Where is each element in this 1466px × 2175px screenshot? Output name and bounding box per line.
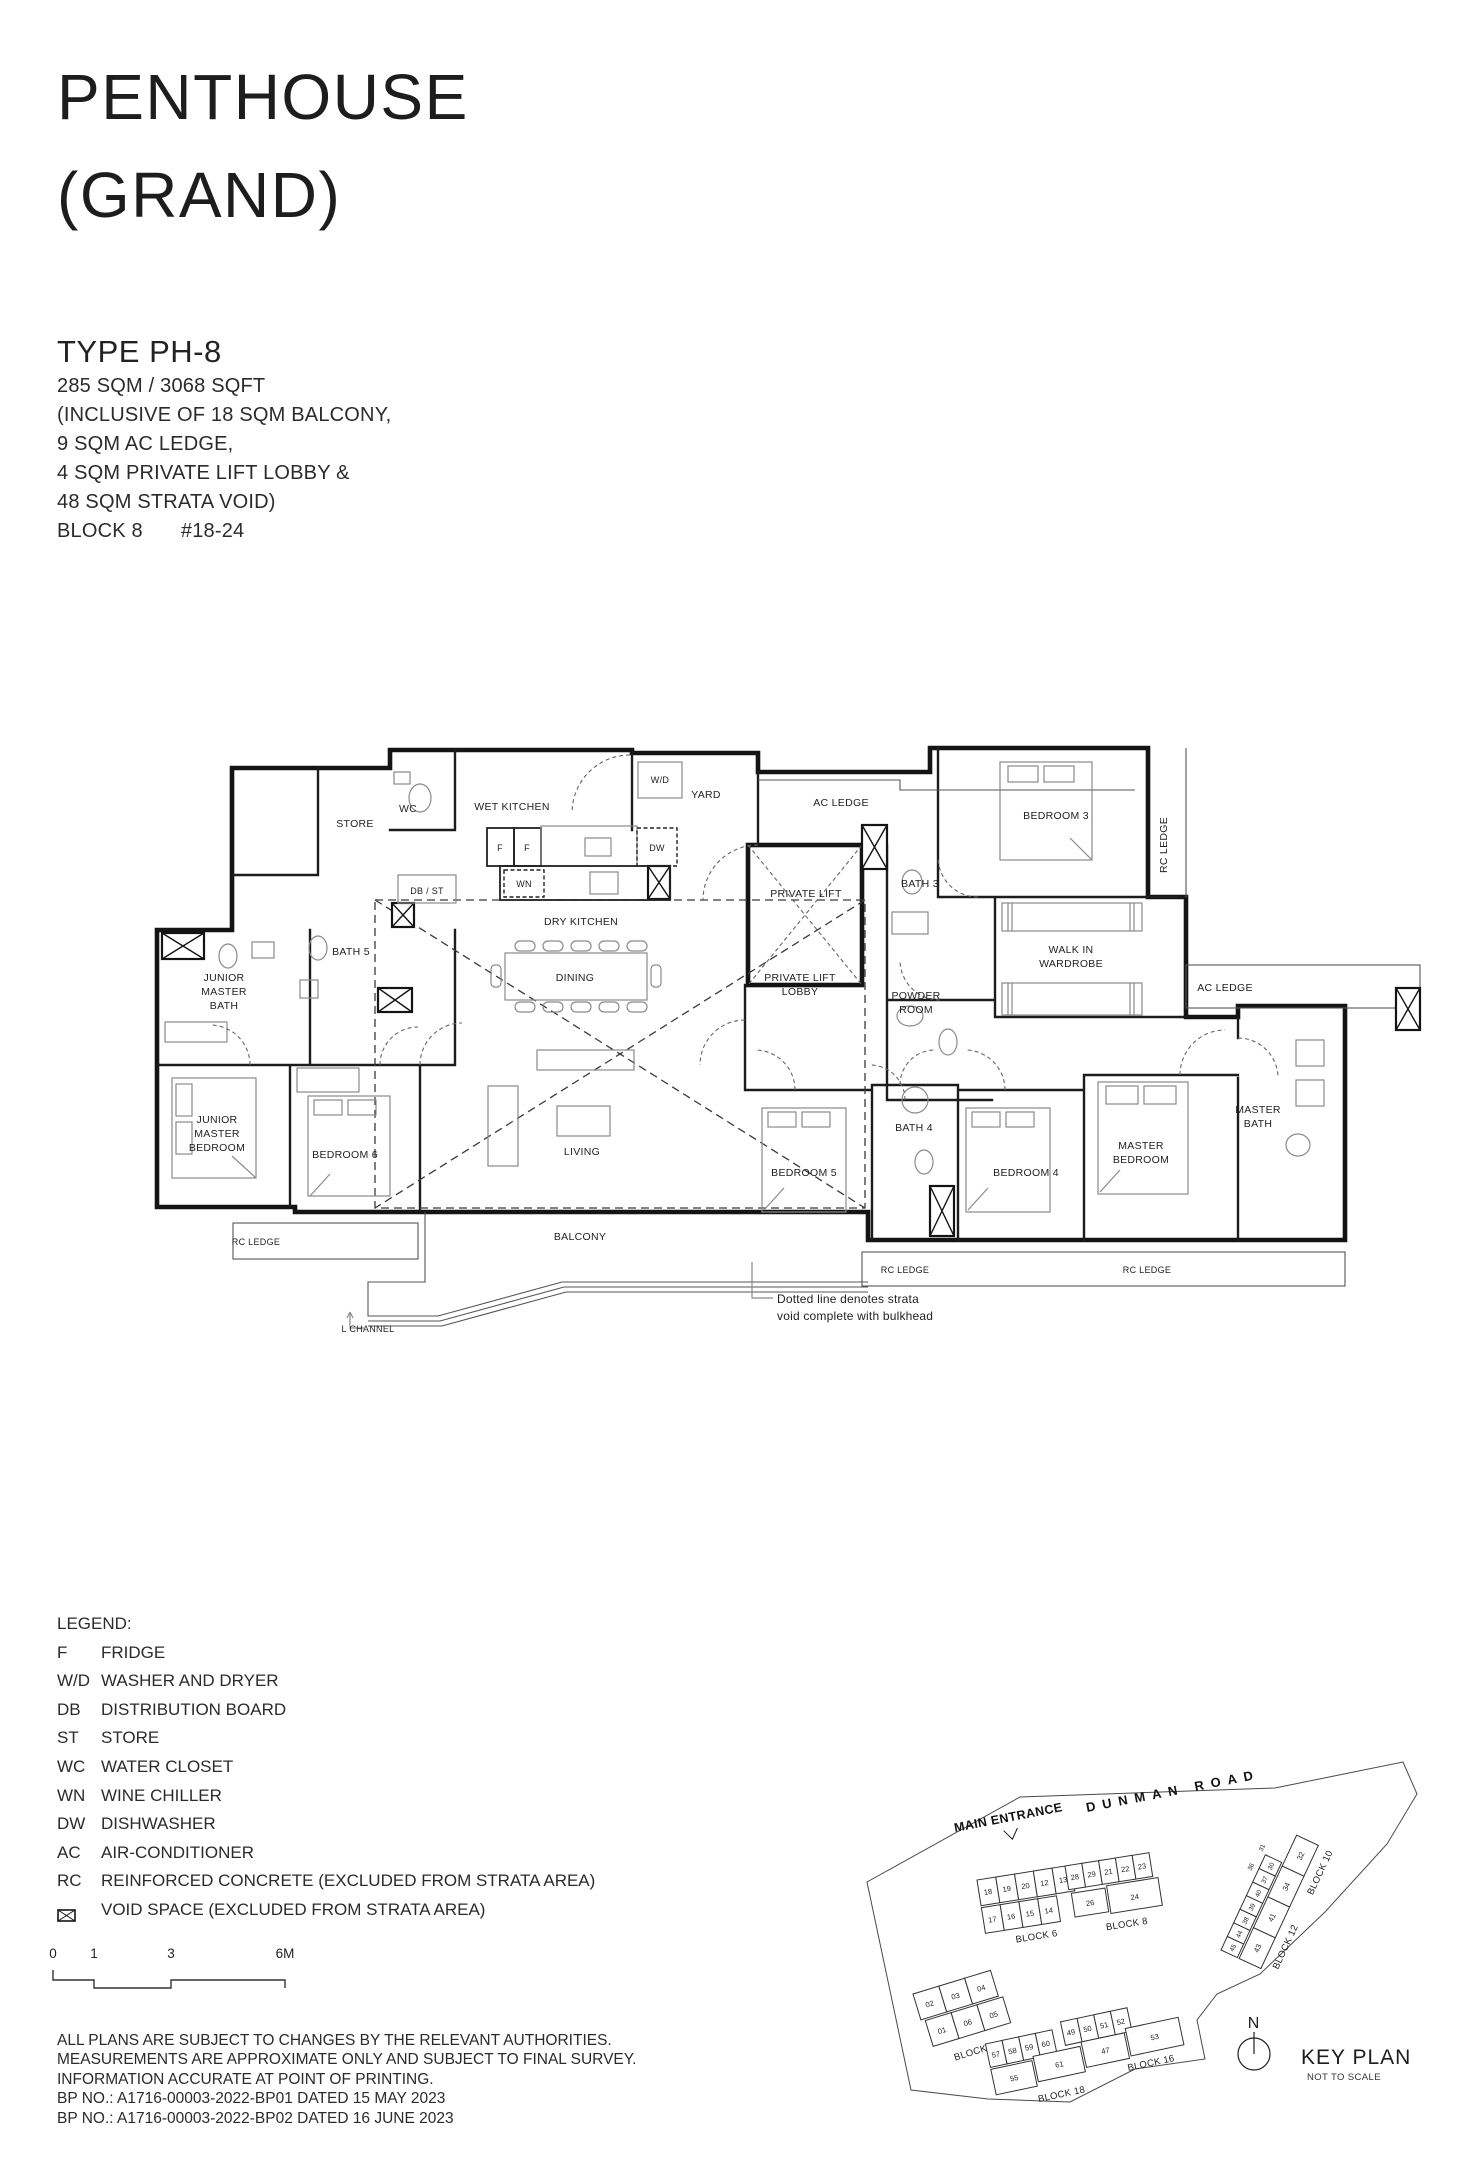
bed-bedroom5: [762, 1108, 846, 1212]
legend-heading: LEGEND:: [57, 1610, 595, 1639]
bed-bedroom6: [308, 1096, 390, 1196]
block-label: BLOCK 8: [1105, 1916, 1148, 1933]
keyplan-unit: 26: [1085, 1898, 1095, 1908]
keyplan-unit: 29: [1087, 1869, 1097, 1879]
rc-ledge-bottom-outline: [862, 1252, 1345, 1286]
room-label: AC LEDGE: [1197, 982, 1253, 994]
legend-row: VOID SPACE (EXCLUDED FROM STRATA AREA): [57, 1896, 595, 1932]
room-label: W/D: [651, 775, 670, 785]
room-label: JUNIOR: [204, 972, 245, 984]
keyplan-title: KEY PLAN: [1301, 2046, 1411, 2069]
unit-area: 285 SQM / 3068 SQFT: [57, 372, 391, 401]
road-label: DUNMAN ROAD: [1085, 1767, 1261, 1815]
key-plan: MAIN ENTRANCE DUNMAN ROAD 18 19 20 12 13…: [855, 1752, 1440, 2110]
room-label: RC LEDGE: [1158, 817, 1170, 873]
room-label: AC LEDGE: [813, 797, 869, 809]
room-label: YARD: [691, 789, 721, 801]
compass: N: [1238, 2015, 1270, 2070]
legend-row: DWDISHWASHER: [57, 1810, 595, 1839]
room-label: ROOM: [899, 1004, 933, 1016]
keyplan-unit: 21: [1104, 1867, 1114, 1877]
keyplan-unit: 22: [1120, 1864, 1130, 1874]
room-label: LIVING: [564, 1146, 600, 1158]
main-entrance-label: MAIN ENTRANCE: [953, 1800, 1067, 1849]
unit-inclusion-line: 9 SQM AC LEDGE,: [57, 430, 391, 459]
room-label: MASTER: [194, 1128, 240, 1140]
room-label: PRIVATE LIFT: [770, 888, 842, 900]
disclaimer-line: INFORMATION ACCURATE AT POINT OF PRINTIN…: [57, 2070, 636, 2089]
sofa: [488, 1086, 518, 1166]
junior-wardrobe: [165, 1022, 227, 1042]
block-10-12: 45 44 38 39 40 37 30 31 43 41 34 32 36 B…: [1211, 1822, 1336, 1977]
keyplan-unit: 31: [1258, 1843, 1268, 1853]
keyplan-unit: 20: [1021, 1881, 1031, 1891]
bedroom6-wardrobe: [297, 1068, 359, 1092]
room-label: WALK IN: [1049, 944, 1094, 956]
lift-cross: [748, 845, 862, 985]
room-label: WC: [399, 803, 417, 815]
unit-block-line: BLOCK 8#18-24: [57, 517, 391, 546]
north-label: N: [1248, 2015, 1261, 2032]
room-label: WN: [516, 879, 532, 889]
ac-ledge-top-outline: [758, 780, 1135, 790]
disclaimer: ALL PLANS ARE SUBJECT TO CHANGES BY THE …: [57, 2031, 636, 2128]
page-title-line1: PENTHOUSE: [57, 48, 469, 146]
disclaimer-line: ALL PLANS ARE SUBJECT TO CHANGES BY THE …: [57, 2031, 636, 2050]
bed-master: [1098, 1082, 1188, 1194]
bed-bedroom4: [966, 1108, 1050, 1212]
room-label: DRY KITCHEN: [544, 916, 618, 928]
room-labels: STORE WC WET KITCHEN W/D YARD AC LEDGE B…: [189, 775, 1281, 1334]
scale-tick: 6M: [276, 1946, 295, 1961]
coffee-table: [557, 1106, 610, 1136]
strata-void-note-line2: void complete with bulkhead: [777, 1309, 933, 1323]
room-label: MASTER: [201, 986, 247, 998]
room-label: LOBBY: [782, 986, 819, 998]
scale-tick: 1: [90, 1946, 98, 1961]
room-label: BATH: [1244, 1118, 1272, 1130]
room-label: L CHANNEL: [342, 1324, 395, 1334]
unit-details: 285 SQM / 3068 SQFT (INCLUSIVE OF 18 SQM…: [57, 372, 391, 546]
room-label: BALCONY: [554, 1231, 606, 1243]
room-label: F: [497, 843, 503, 853]
keyplan-unit: 15: [1025, 1909, 1035, 1919]
legend-row: ACAIR-CONDITIONER: [57, 1839, 595, 1868]
room-label: POWDER: [891, 990, 940, 1002]
legend-row: WCWATER CLOSET: [57, 1753, 595, 1782]
room-label: STORE: [336, 818, 373, 830]
strata-void-note-line1: Dotted line denotes strata: [777, 1292, 919, 1306]
room-label: MASTER: [1118, 1140, 1164, 1152]
svg-text:DUNMAN ROAD: DUNMAN ROAD: [1085, 1767, 1261, 1815]
keyplan-subtitle: NOT TO SCALE: [1307, 2072, 1381, 2083]
room-label: BATH 4: [895, 1122, 933, 1134]
room-label: BEDROOM 5: [771, 1167, 837, 1179]
room-label: F: [524, 843, 530, 853]
page-title-line2: (GRAND): [57, 146, 469, 244]
private-lift-shaft: [748, 845, 862, 985]
kitchen-fixtures: [394, 762, 682, 903]
entrance-arrow-icon: [1004, 1828, 1020, 1840]
room-label: DB / ST: [410, 886, 444, 896]
room-label: WET KITCHEN: [474, 801, 549, 813]
room-label: BATH 3: [901, 878, 939, 890]
keyplan-unit: 23: [1137, 1861, 1147, 1871]
keyplan-unit: 18: [983, 1887, 993, 1897]
unit-number: #18-24: [181, 517, 244, 546]
keyplan-unit: 36: [1247, 1862, 1257, 1872]
room-label: RC LEDGE: [1123, 1265, 1171, 1275]
room-label: BEDROOM: [189, 1142, 245, 1154]
svg-text:MAIN ENTRANCE: MAIN ENTRANCE: [953, 1800, 1064, 1835]
disclaimer-line: BP NO.: A1716-00003-2022-BP01 DATED 15 M…: [57, 2089, 636, 2108]
room-label: WARDROBE: [1039, 958, 1103, 970]
room-label: JUNIOR: [197, 1114, 238, 1126]
room-label: BATH 5: [332, 946, 370, 958]
room-label: BEDROOM 6: [312, 1149, 378, 1161]
legend-row: RCREINFORCED CONCRETE (EXCLUDED FROM STR…: [57, 1867, 595, 1896]
scale-bar: 0 1 3 6M: [45, 1944, 305, 1994]
room-label: PRIVATE LIFT: [764, 972, 836, 984]
block-6: 18 19 20 12 13 17 16 15 14 BLOCK 6: [977, 1865, 1082, 1950]
floor-plan-drawing: STORE WC WET KITCHEN W/D YARD AC LEDGE B…: [150, 735, 1440, 1350]
legend-row: WNWINE CHILLER: [57, 1782, 595, 1811]
unit-block: BLOCK 8: [57, 517, 143, 546]
block-label: BLOCK 6: [1015, 1928, 1058, 1945]
unit-type: TYPE PH-8: [57, 334, 222, 370]
room-label: BEDROOM 4: [993, 1167, 1059, 1179]
keyplan-unit: 19: [1002, 1884, 1012, 1894]
room-label: RC LEDGE: [881, 1265, 929, 1275]
keyplan-unit: 17: [988, 1914, 998, 1924]
room-label: DW: [649, 843, 665, 853]
room-label: DINING: [556, 972, 595, 984]
keyplan-unit: 16: [1006, 1912, 1016, 1922]
legend-row: W/DWASHER AND DRYER: [57, 1667, 595, 1696]
keyplan-unit: 14: [1044, 1906, 1054, 1916]
room-label: BATH: [210, 1000, 238, 1012]
disclaimer-line: BP NO.: A1716-00003-2022-BP02 DATED 16 J…: [57, 2109, 636, 2128]
legend-row: STSTORE: [57, 1724, 595, 1753]
legend-row: DBDISTRIBUTION BOARD: [57, 1696, 595, 1725]
legend-row: FFRIDGE: [57, 1639, 595, 1668]
annotation-leaders: [347, 1262, 773, 1328]
legend: LEGEND: FFRIDGE W/DWASHER AND DRYER DBDI…: [57, 1610, 595, 1932]
unit-inclusion-line: 4 SQM PRIVATE LIFT LOBBY &: [57, 459, 391, 488]
keyplan-unit: 28: [1070, 1872, 1080, 1882]
unit-inclusion-line: 48 SQM STRATA VOID): [57, 488, 391, 517]
block-8: 28 29 21 22 23 26 24 BLOCK 8: [1065, 1852, 1165, 1938]
disclaimer-line: MEASUREMENTS ARE APPROXIMATE ONLY AND SU…: [57, 2050, 636, 2069]
room-label: BEDROOM: [1113, 1154, 1169, 1166]
room-label: BEDROOM 3: [1023, 810, 1089, 822]
block-label: BLOCK 16: [1127, 2053, 1176, 2074]
void-space-icon: [57, 1896, 101, 1932]
room-label: RC LEDGE: [232, 1237, 280, 1247]
keyplan-unit: 12: [1039, 1878, 1049, 1888]
keyplan-unit: 24: [1130, 1892, 1140, 1902]
unit-inclusion-line: (INCLUSIVE OF 18 SQM BALCONY,: [57, 401, 391, 430]
scale-tick: 0: [49, 1946, 57, 1961]
room-label: MASTER: [1235, 1104, 1281, 1116]
bath-fixtures: [219, 870, 1324, 1174]
scale-tick: 3: [167, 1946, 175, 1961]
page-title: PENTHOUSE (GRAND): [57, 48, 469, 244]
